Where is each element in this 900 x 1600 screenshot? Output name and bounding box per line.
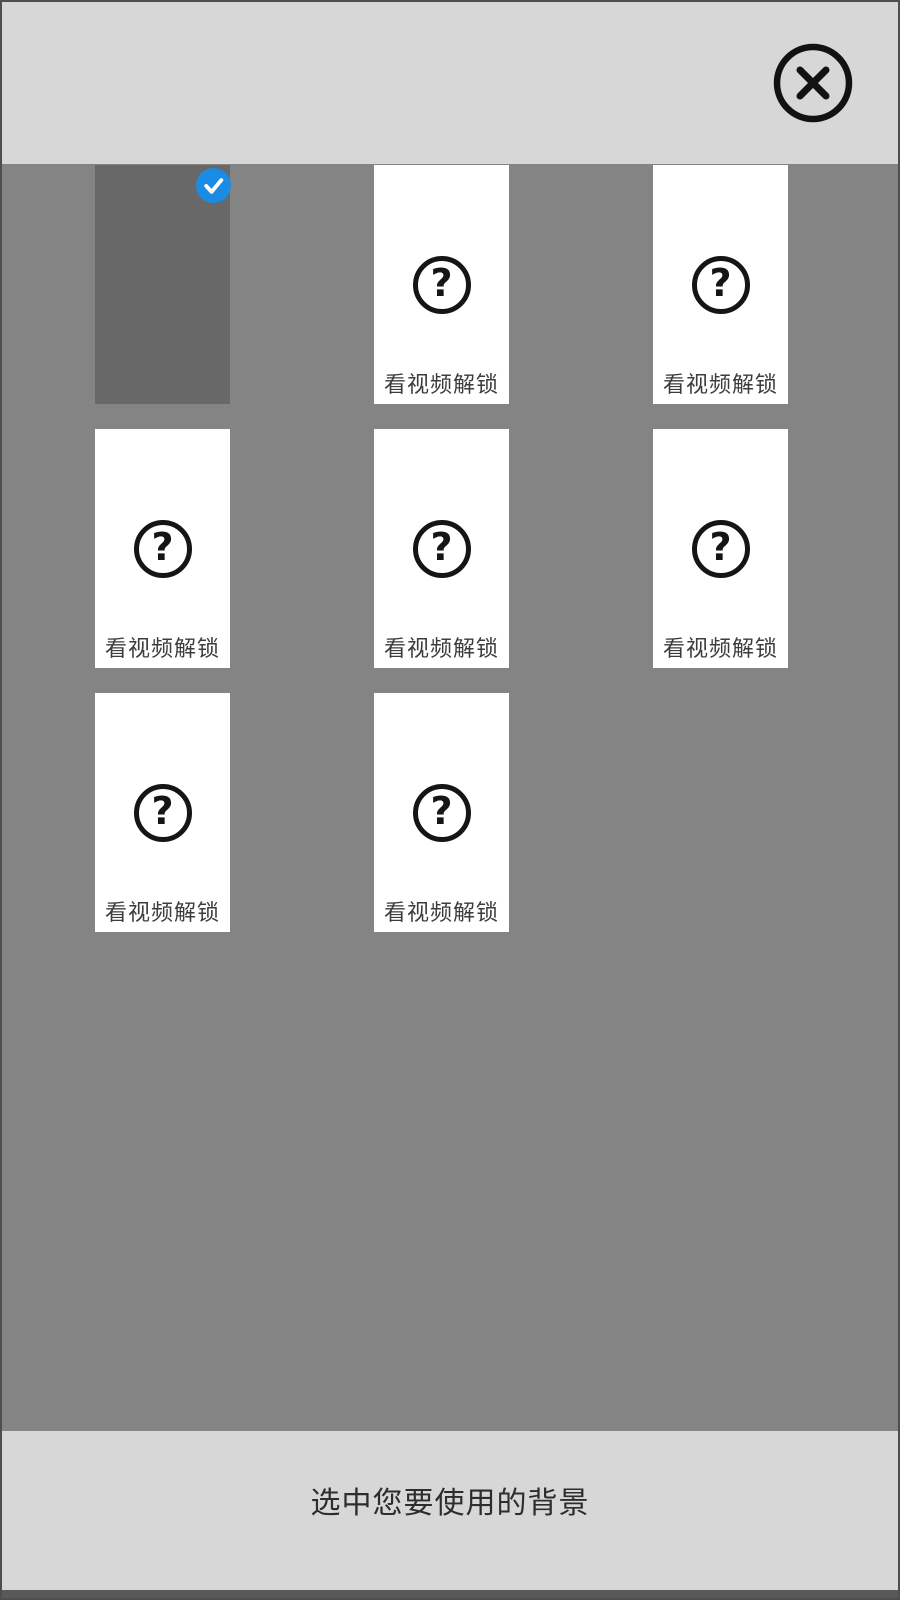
unlock-label: 看视频解锁 [95,631,230,663]
background-picker-dialog: ? 看视频解锁 ? 看视频解锁 ? 看视频解锁 ? 看视频解锁 ? 看视频解锁 … [0,0,900,1600]
question-glyph: ? [709,528,731,569]
question-glyph: ? [430,792,452,833]
background-option-locked[interactable]: ? 看视频解锁 [653,165,788,404]
question-mark-icon: ? [134,520,192,578]
background-grid: ? 看视频解锁 ? 看视频解锁 ? 看视频解锁 ? 看视频解锁 ? 看视频解锁 … [2,164,898,932]
dialog-body: ? 看视频解锁 ? 看视频解锁 ? 看视频解锁 ? 看视频解锁 ? 看视频解锁 … [2,164,898,1431]
selected-check-badge [196,168,231,203]
question-mark-icon: ? [692,256,750,314]
background-option-locked[interactable]: ? 看视频解锁 [374,429,509,668]
question-mark-icon: ? [413,520,471,578]
question-mark-icon: ? [692,520,750,578]
checkmark-icon [196,168,231,203]
unlock-label: 看视频解锁 [653,631,788,663]
footer-caption: 选中您要使用的背景 [311,1478,590,1522]
background-option-selected[interactable] [95,165,230,404]
background-option-locked[interactable]: ? 看视频解锁 [653,429,788,668]
question-glyph: ? [151,792,173,833]
question-mark-icon: ? [134,784,192,842]
close-button[interactable] [773,43,853,123]
unlock-label: 看视频解锁 [374,367,509,399]
close-icon [773,43,853,123]
dialog-header [2,2,898,164]
unlock-label: 看视频解锁 [653,367,788,399]
unlock-label: 看视频解锁 [374,631,509,663]
unlock-label: 看视频解锁 [95,895,230,927]
question-glyph: ? [430,264,452,305]
background-option-locked[interactable]: ? 看视频解锁 [95,693,230,932]
question-mark-icon: ? [413,784,471,842]
dialog-footer: 选中您要使用的背景 [2,1431,898,1590]
question-glyph: ? [151,528,173,569]
question-glyph: ? [709,264,731,305]
background-option-locked[interactable]: ? 看视频解锁 [374,693,509,932]
background-option-locked[interactable]: ? 看视频解锁 [374,165,509,404]
unlock-label: 看视频解锁 [374,895,509,927]
bottom-strip [2,1590,898,1598]
question-glyph: ? [430,528,452,569]
background-option-locked[interactable]: ? 看视频解锁 [95,429,230,668]
question-mark-icon: ? [413,256,471,314]
